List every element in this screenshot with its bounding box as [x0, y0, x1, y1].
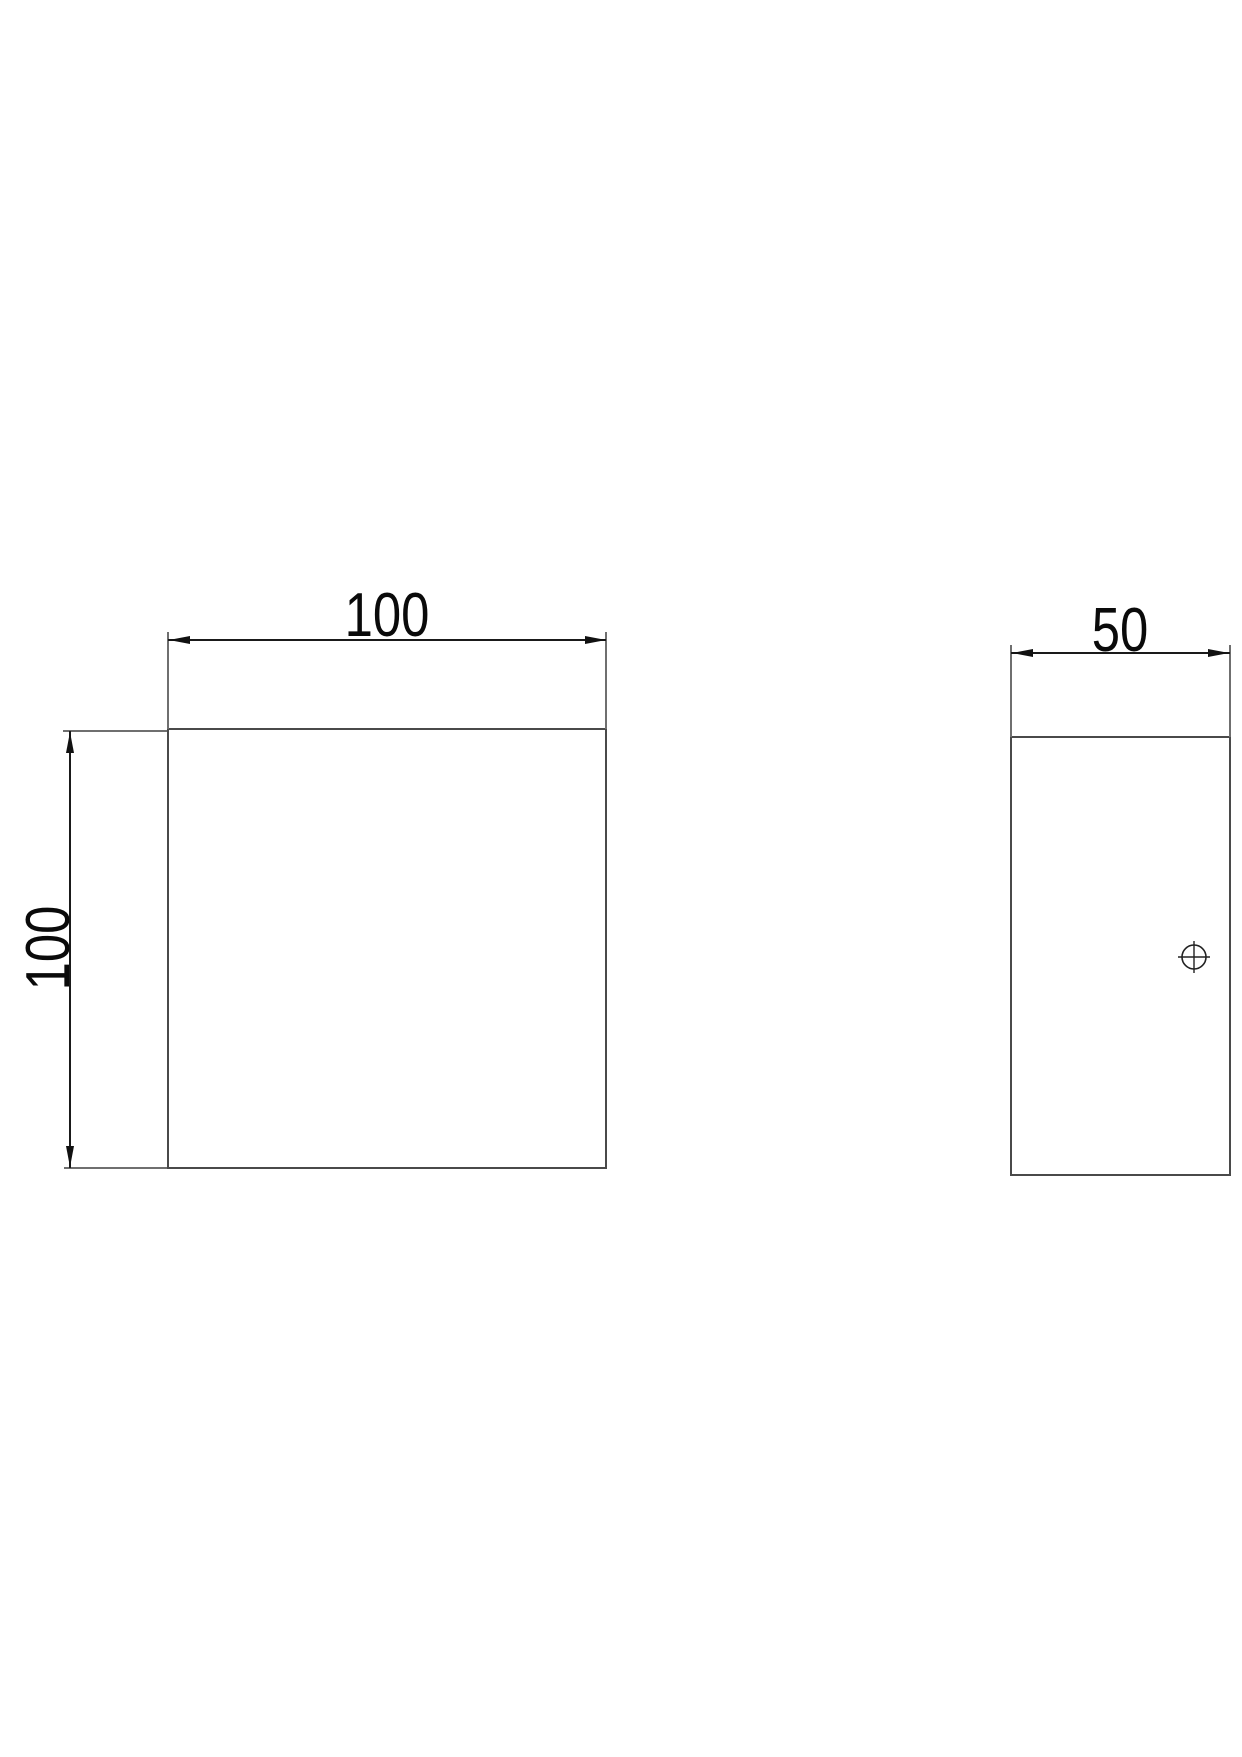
arrowhead-icon [1208, 649, 1229, 657]
arrowhead-icon [585, 636, 606, 644]
front-height-extension-line-bottom [64, 1167, 167, 1169]
front-width-extension-line-right [605, 632, 607, 729]
hole-crosshair-icon [1176, 939, 1212, 975]
arrowhead-icon [66, 732, 74, 753]
arrowhead-icon [1012, 649, 1033, 657]
arrowhead-icon [66, 1146, 74, 1167]
front-height-dimension-text: 100 [18, 906, 80, 991]
side-width-dimension-text: 50 [1092, 600, 1149, 662]
front-view-outline [167, 728, 607, 1169]
front-height-extension-line-top [63, 730, 167, 732]
drawing-sheet: 100 100 50 [0, 0, 1242, 1757]
side-width-extension-line-right [1229, 645, 1231, 737]
side-width-extension-line-left [1010, 645, 1012, 737]
front-width-dimension-text: 100 [345, 585, 430, 647]
front-width-extension-line-left [167, 632, 169, 729]
arrowhead-icon [169, 636, 190, 644]
